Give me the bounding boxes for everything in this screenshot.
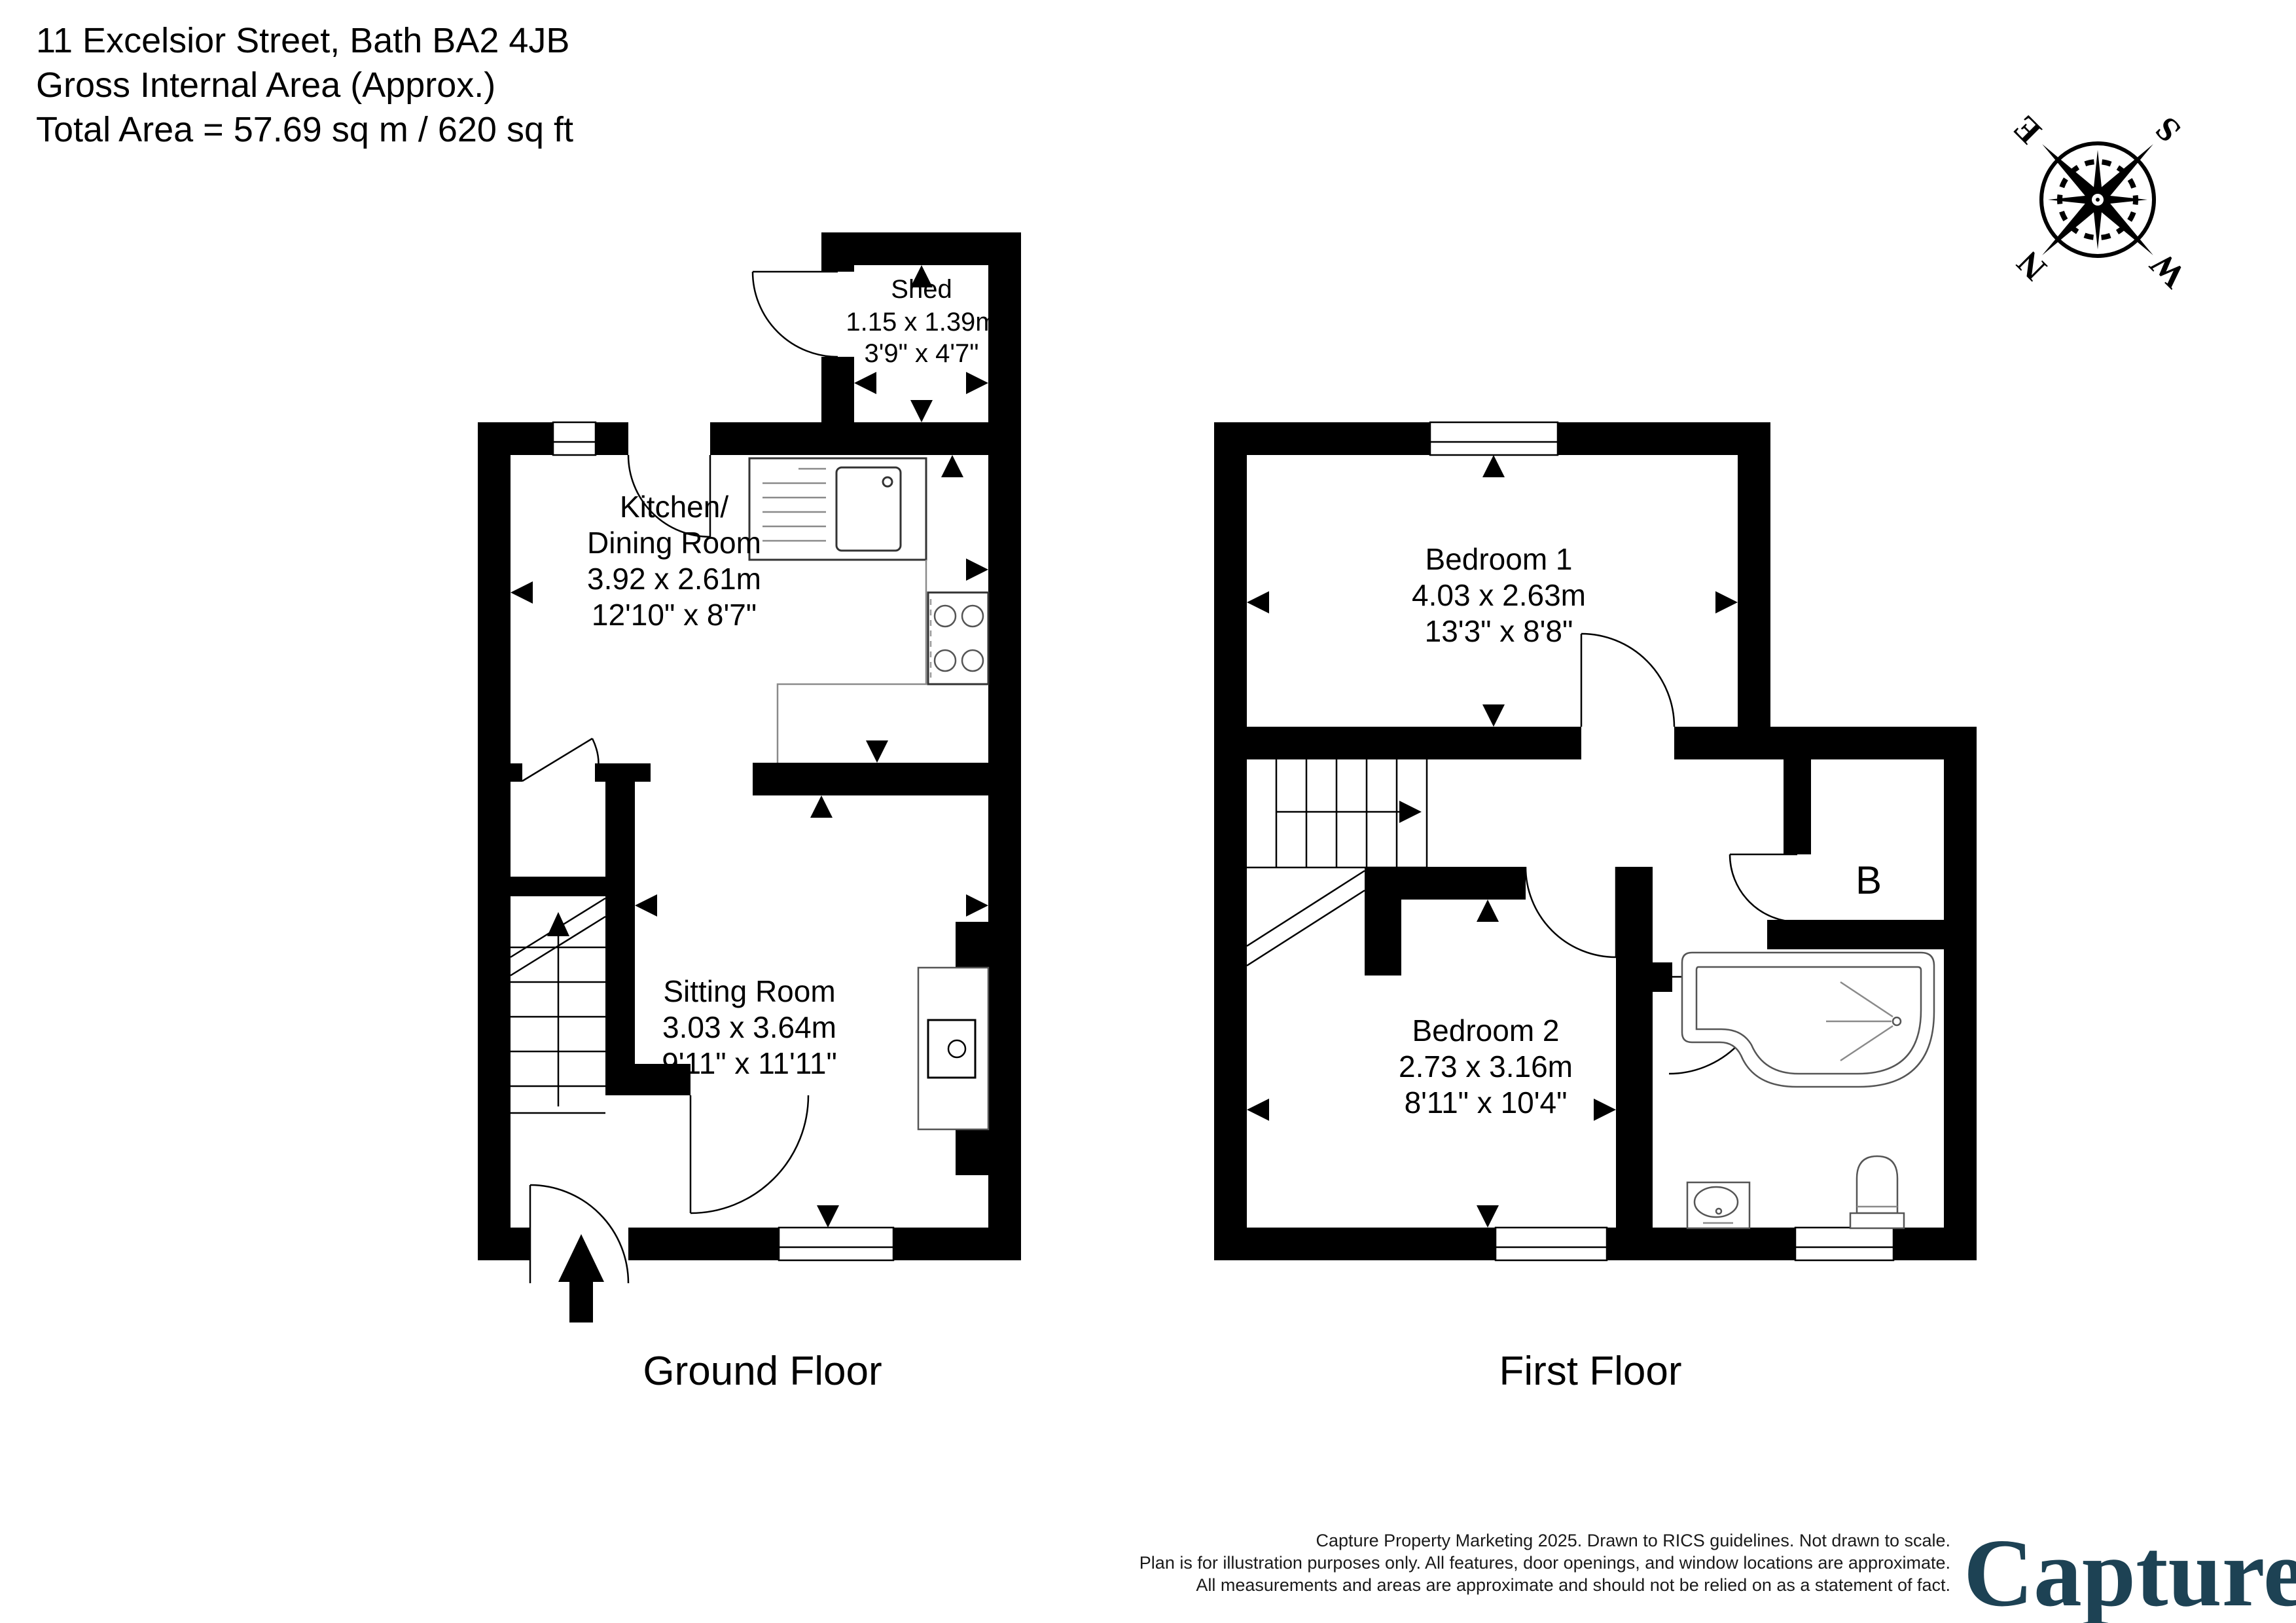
bedroom1-bottom-wall <box>1674 727 1738 759</box>
kitchen-name-1: Kitchen/ <box>620 490 728 524</box>
sitting-room-metric: 3.03 x 3.64m <box>662 1010 836 1044</box>
arrow-right-icon <box>1715 591 1738 613</box>
sitting-room-imperial: 9'11" x 11'11" <box>662 1046 837 1080</box>
arrow-right-icon <box>1594 1099 1616 1121</box>
arrow-right-icon <box>966 558 988 581</box>
gf-stair-wall <box>605 782 635 1064</box>
ff-bottom-wall <box>1893 1228 1977 1260</box>
arrow-down-icon <box>866 740 888 763</box>
address-line: 11 Excelsior Street, Bath BA2 4JB <box>36 21 569 60</box>
arrow-down-icon <box>1482 704 1505 727</box>
arrow-left-icon <box>1247 1099 1269 1121</box>
stairwell-corner-wall <box>1365 867 1401 976</box>
arrow-up-icon <box>1477 900 1499 922</box>
arrow-down-icon <box>1477 1205 1499 1228</box>
bedroom1-door <box>1581 634 1674 727</box>
kitchen-fixtures <box>749 458 988 763</box>
stair-break-line <box>1247 871 1365 946</box>
gf-lobby-wall <box>511 877 605 896</box>
bedroom2-window <box>1496 1228 1607 1260</box>
disclaimer-line-2: Plan is for illustration purposes only. … <box>1139 1553 1950 1573</box>
kitchen-metric: 3.92 x 2.61m <box>587 562 761 596</box>
shed-name: Shed <box>891 275 952 304</box>
kitchen-hob <box>928 593 988 684</box>
gf-bottom-wall <box>893 1228 988 1260</box>
shed-door <box>753 272 838 357</box>
sitting-room-window <box>779 1228 893 1260</box>
sitting-room-door <box>691 1095 808 1213</box>
arrow-left-icon <box>854 372 876 394</box>
bathroom-sink <box>1687 1182 1749 1228</box>
bedroom1-metric: 4.03 x 2.63m <box>1412 578 1586 612</box>
stair-direction-arrow <box>1276 801 1422 823</box>
gf-staircase <box>511 898 605 1113</box>
ff-bottom-wall <box>1214 1228 1496 1260</box>
header: 11 Excelsior Street, Bath BA2 4JB Gross … <box>36 21 573 149</box>
floorplan-page: 11 Excelsior Street, Bath BA2 4JB Gross … <box>0 0 2296 1623</box>
bedroom2-metric: 2.73 x 3.16m <box>1399 1049 1573 1084</box>
gf-top-wall <box>478 422 553 455</box>
bathroom-window <box>1795 1228 1893 1260</box>
gf-bottom-wall <box>478 1228 530 1260</box>
ground-floor-plan: Shed 1.15 x 1.39m 3'9" x 4'7" Kitchen/ D… <box>478 232 1021 1394</box>
shed-imperial: 3'9" x 4'7" <box>865 339 979 368</box>
gf-left-wall <box>478 422 511 1260</box>
arrow-up-icon <box>810 795 833 818</box>
kitchen-name-2: Dining Room <box>587 526 761 560</box>
first-floor-caption: First Floor <box>1499 1349 1682 1394</box>
sitting-room-name: Sitting Room <box>663 974 835 1008</box>
arrow-down-icon <box>817 1205 839 1228</box>
compass-rose: N E S W <box>1941 38 2264 361</box>
gf-divider-thin-wall <box>595 763 651 782</box>
ff-right-wall <box>1944 727 1977 1260</box>
shower-bath <box>1682 953 1934 1087</box>
gf-bottom-wall <box>628 1228 779 1260</box>
capture-logo-text: Capture <box>1964 1520 2296 1623</box>
ff-top-wall <box>1214 422 1430 455</box>
shed-left-wall <box>821 357 854 455</box>
gf-divider-thin-wall <box>511 763 522 782</box>
lobby-door <box>522 739 598 781</box>
bedroom1-imperial: 13'3" x 8'8" <box>1425 614 1573 648</box>
compass-label-s: S <box>2148 109 2188 149</box>
arrow-right-icon <box>966 894 988 917</box>
ff-left-wall <box>1214 422 1247 1260</box>
bedroom1-window <box>1430 422 1558 455</box>
kitchen-counter-line <box>778 560 926 763</box>
first-floor-plan: Bedroom 1 4.03 x 2.63m 13'3" x 8'8" Bedr… <box>1214 422 1977 1394</box>
bedroom2-imperial: 8'11" x 10'4" <box>1405 1085 1568 1120</box>
ff-step-wall <box>1738 727 1977 759</box>
gf-top-wall <box>596 422 628 455</box>
bedroom2-name: Bedroom 2 <box>1412 1013 1559 1048</box>
arrow-left-icon <box>1247 591 1269 613</box>
ff-bottom-wall <box>1607 1228 1795 1260</box>
bedroom1-bottom-wall <box>1247 727 1581 759</box>
stair-break-line <box>1247 890 1365 966</box>
floorplan-canvas: 11 Excelsior Street, Bath BA2 4JB Gross … <box>0 0 2296 1623</box>
cupboard-label: B <box>1856 858 1882 902</box>
bedroom2-door <box>1526 867 1616 957</box>
arrow-left-icon <box>635 894 657 917</box>
gf-top-wall <box>710 422 821 455</box>
entrance-arrow-icon <box>558 1234 604 1322</box>
shed-left-wall <box>821 232 854 272</box>
shed-metric: 1.15 x 1.39m <box>846 308 997 337</box>
cupboard-left-wall <box>1784 759 1811 854</box>
cupboard-door <box>1730 854 1797 922</box>
gross-area-line: Gross Internal Area (Approx.) <box>36 65 495 105</box>
toilet <box>1850 1156 1904 1228</box>
bedroom2-right-wall <box>1616 867 1653 1228</box>
gf-measure-arrows <box>511 265 988 1228</box>
fireplace <box>918 922 988 1175</box>
bathroom-top-wall <box>1767 920 1944 949</box>
ground-floor-caption: Ground Floor <box>643 1349 882 1394</box>
footer: Capture Property Marketing 2025. Drawn t… <box>1139 1520 2296 1623</box>
kitchen-imperial: 12'10" x 8'7" <box>592 598 757 632</box>
bedroom1-name: Bedroom 1 <box>1425 542 1572 576</box>
sink-tap <box>883 477 892 486</box>
kitchen-window <box>553 422 596 455</box>
disclaimer-line-3: All measurements and areas are approxima… <box>1196 1575 1950 1595</box>
arrow-down-icon <box>910 400 933 422</box>
total-area-line: Total Area = 57.69 sq m / 620 sq ft <box>36 110 573 149</box>
bathroom-fixtures <box>1682 953 1934 1228</box>
arrow-left-icon <box>511 581 533 604</box>
gf-divider-wall <box>753 763 988 795</box>
disclaimer-line-1: Capture Property Marketing 2025. Drawn t… <box>1316 1531 1950 1550</box>
bedroom1-right-wall <box>1738 422 1770 759</box>
gf-shed-bottom-wall <box>854 422 988 455</box>
arrow-up-icon <box>941 455 963 477</box>
first-floor-walls <box>1214 422 1977 1260</box>
kitchen-sink <box>749 458 926 560</box>
arrow-up-icon <box>1482 455 1505 477</box>
arrow-right-icon <box>966 372 988 394</box>
capture-logo: Capture. <box>1964 1520 2296 1623</box>
gf-right-wall <box>988 232 1021 1260</box>
